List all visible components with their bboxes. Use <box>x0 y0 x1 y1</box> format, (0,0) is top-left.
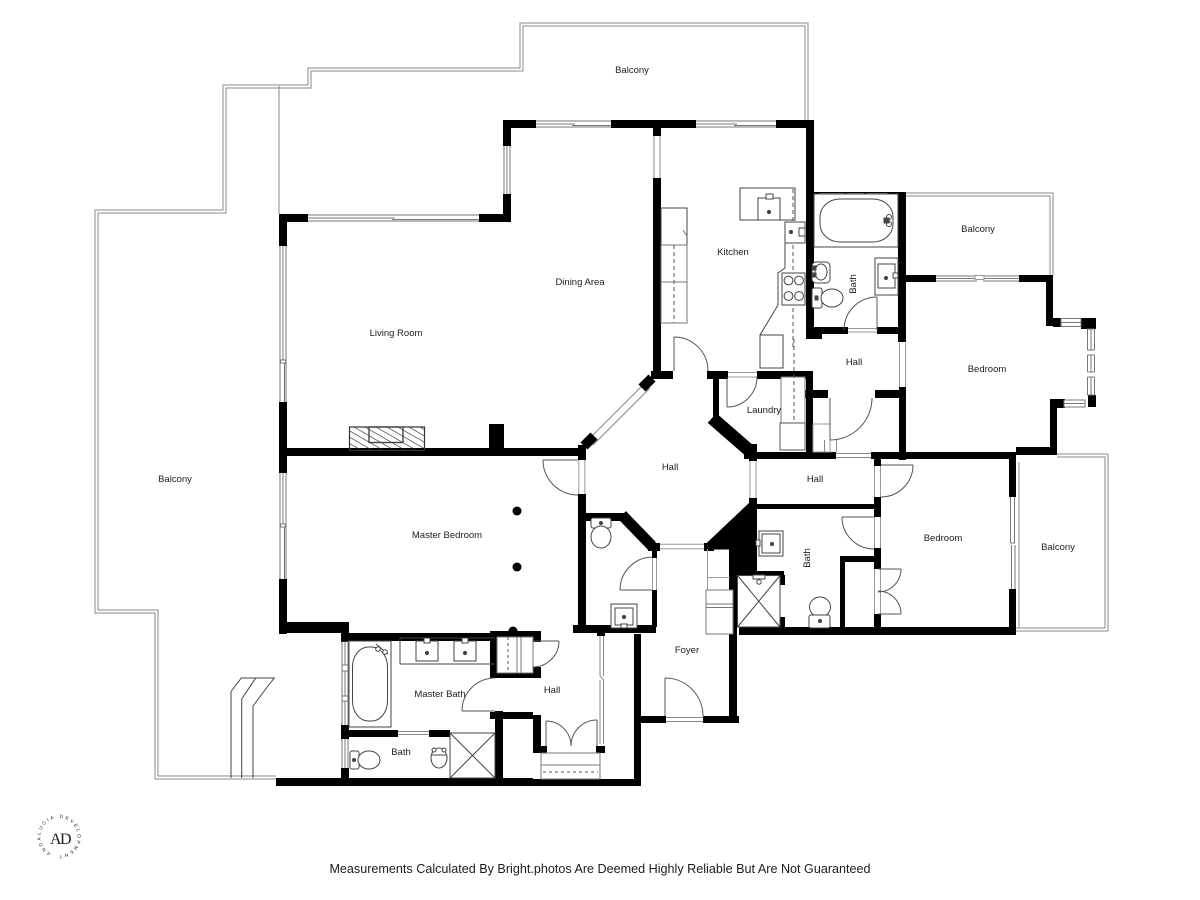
svg-text:Dining Area: Dining Area <box>555 277 605 288</box>
svg-text:Bedroom: Bedroom <box>968 364 1007 375</box>
svg-text:Bath: Bath <box>848 274 859 294</box>
svg-text:Balcony: Balcony <box>158 474 192 485</box>
svg-text:Kitchen: Kitchen <box>717 247 749 258</box>
svg-text:Hall: Hall <box>662 462 678 473</box>
svg-text:AD: AD <box>50 831 71 848</box>
svg-text:Balcony: Balcony <box>1041 542 1075 553</box>
svg-text:Measurements Calculated By Bri: Measurements Calculated By Bright.photos… <box>329 862 870 876</box>
svg-text:Bath: Bath <box>391 747 411 758</box>
svg-text:Master Bath: Master Bath <box>414 689 465 700</box>
svg-text:Bedroom: Bedroom <box>924 533 963 544</box>
svg-text:Hall: Hall <box>544 685 560 696</box>
svg-text:Balcony: Balcony <box>615 65 649 76</box>
svg-text:Master Bedroom: Master Bedroom <box>412 530 482 541</box>
svg-text:Laundry: Laundry <box>747 405 782 416</box>
svg-text:Bath: Bath <box>802 548 813 568</box>
svg-text:Hall: Hall <box>846 357 862 368</box>
svg-text:Foyer: Foyer <box>675 645 699 656</box>
svg-text:Living Room: Living Room <box>370 328 423 339</box>
svg-text:Hall: Hall <box>807 474 823 485</box>
svg-text:Balcony: Balcony <box>961 224 995 235</box>
